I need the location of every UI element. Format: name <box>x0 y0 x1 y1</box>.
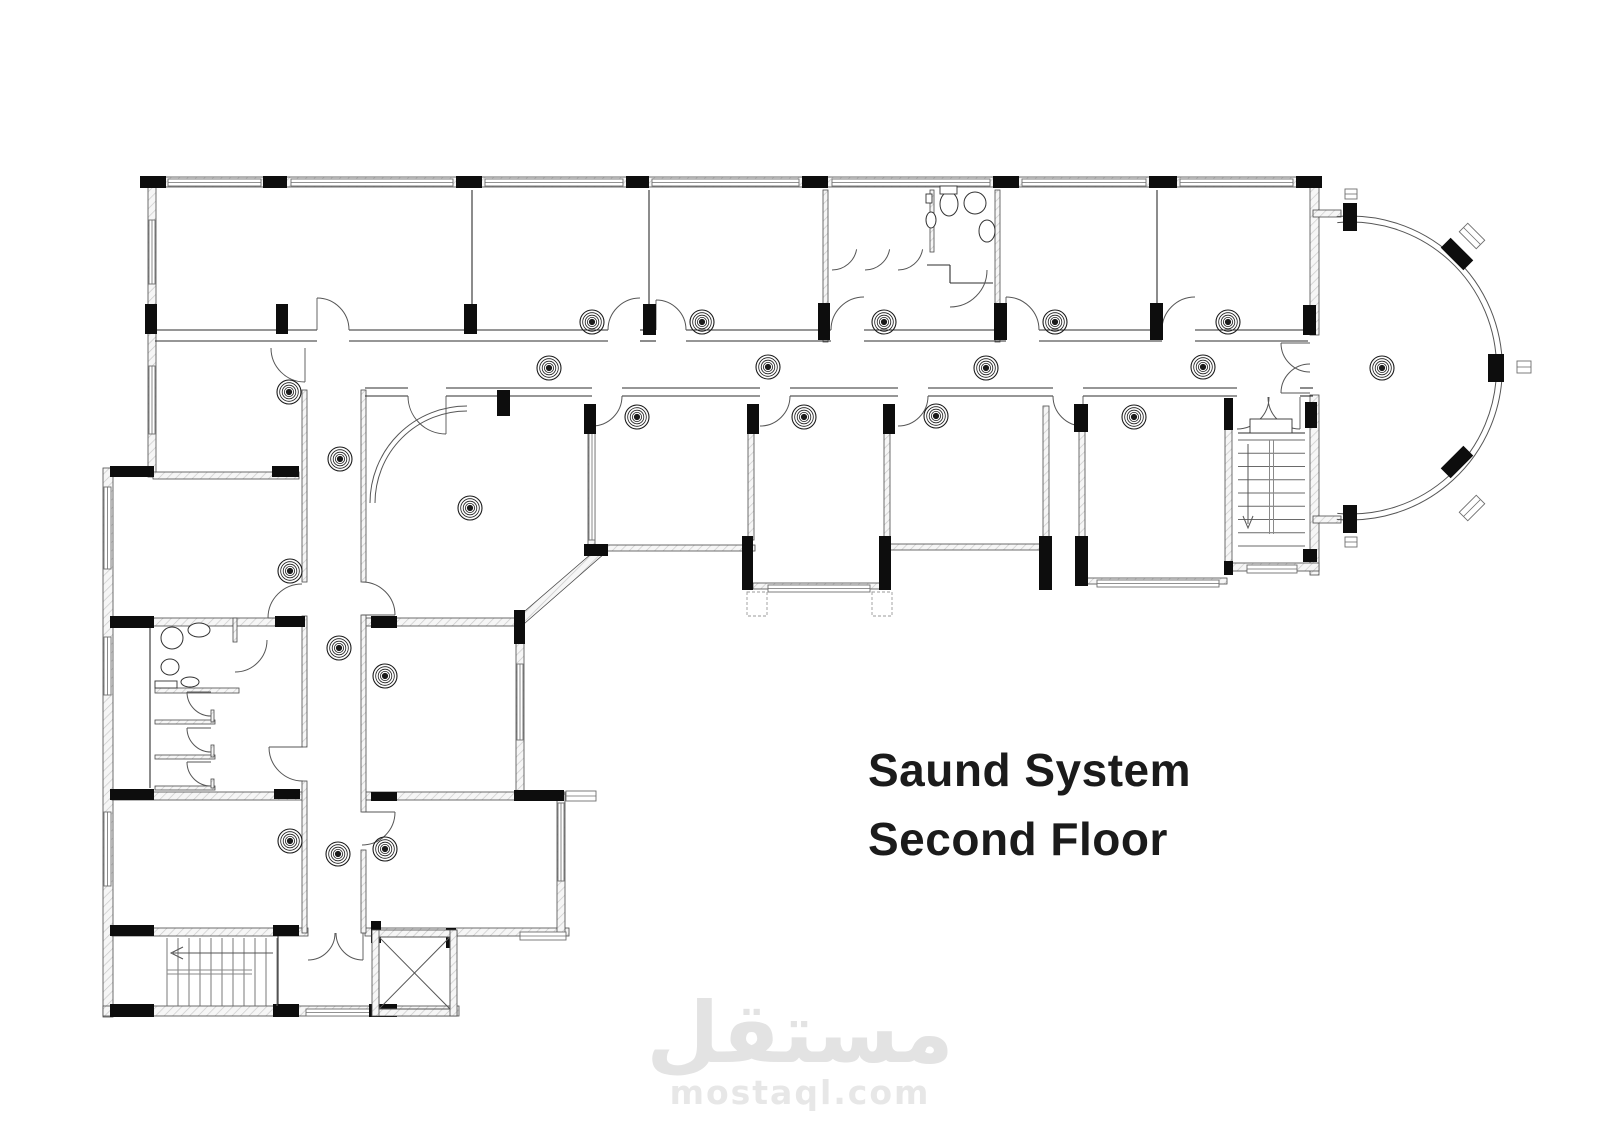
column <box>883 404 895 434</box>
wall <box>1043 406 1049 547</box>
speaker-icon <box>756 355 780 379</box>
column <box>1488 354 1504 382</box>
column <box>818 303 830 340</box>
column <box>1441 238 1474 271</box>
column <box>1296 176 1322 188</box>
column <box>110 925 154 936</box>
speaker-icon <box>1122 405 1146 429</box>
column <box>802 176 828 188</box>
wall <box>155 786 215 790</box>
window <box>1345 537 1357 547</box>
window <box>1247 565 1297 573</box>
speaker-icon <box>373 837 397 861</box>
window <box>832 179 990 186</box>
column <box>584 544 608 556</box>
window <box>306 1009 372 1016</box>
column <box>1149 176 1177 188</box>
fixture <box>940 192 958 216</box>
door-swing-arc <box>898 396 928 426</box>
column <box>584 404 596 434</box>
wall <box>361 615 366 812</box>
door-swing-arc <box>1281 364 1310 393</box>
door-swing-arc <box>832 249 857 270</box>
column <box>140 176 166 188</box>
fixture <box>940 186 957 194</box>
window <box>149 366 155 434</box>
fixture <box>979 220 995 242</box>
column <box>110 466 154 477</box>
wall-diagonal <box>518 548 605 623</box>
door-swing-arc <box>1162 297 1195 330</box>
column <box>273 925 299 936</box>
floorplan-page: Saund System Second Floor مستقل mostaql.… <box>0 0 1600 1131</box>
staircase <box>1238 440 1305 546</box>
wall <box>890 544 1049 550</box>
speaker-icon <box>278 559 302 583</box>
speaker-icon <box>277 380 301 404</box>
window <box>1345 189 1357 199</box>
column <box>456 176 482 188</box>
column <box>1303 305 1316 335</box>
curved-wall-arc <box>1337 216 1502 520</box>
floor-plan-canvas: Saund System Second Floor مستقل mostaql.… <box>0 0 1600 1131</box>
column <box>274 789 300 799</box>
column <box>110 616 154 628</box>
wall <box>302 616 307 747</box>
speaker-icon <box>924 404 948 428</box>
speaker-icon <box>1191 355 1215 379</box>
window <box>1517 361 1531 373</box>
column <box>1305 402 1317 428</box>
column <box>1039 536 1052 590</box>
wall <box>361 850 366 933</box>
window <box>104 487 111 569</box>
speaker-icon <box>327 636 351 660</box>
door-swing-arc <box>760 396 790 426</box>
curved-wall-arc <box>1337 222 1496 514</box>
window-below <box>872 592 892 616</box>
watermark-site-name: mostaql.com <box>670 1073 931 1112</box>
fixture <box>161 627 183 649</box>
wall <box>155 720 215 724</box>
door-swing-arc <box>831 297 864 330</box>
window <box>104 812 111 886</box>
column <box>626 176 649 188</box>
column <box>497 390 510 416</box>
window <box>485 179 623 186</box>
door-swing-arc <box>269 747 303 781</box>
door-swing-arc <box>1006 297 1039 330</box>
window <box>652 179 799 186</box>
staircase <box>167 938 277 1006</box>
wall <box>155 755 215 759</box>
window <box>566 791 596 801</box>
fixture <box>926 194 932 203</box>
window <box>768 585 870 592</box>
watermark-arabic-logo: مستقل <box>646 984 953 1082</box>
column <box>1303 549 1317 562</box>
window <box>1459 223 1484 248</box>
door-swing-arc <box>187 728 211 752</box>
wall <box>302 781 307 933</box>
column <box>275 616 305 627</box>
column <box>371 616 397 628</box>
wall <box>361 390 366 582</box>
fixture <box>926 212 936 228</box>
fixture <box>964 192 986 214</box>
speaker-icon <box>278 829 302 853</box>
speaker-icon <box>537 356 561 380</box>
wall <box>211 745 214 757</box>
door-swing-arc <box>271 348 305 382</box>
door-swing-arc <box>362 582 395 615</box>
plan-title-line2: Second Floor <box>868 813 1168 865</box>
wall <box>211 779 214 788</box>
door-swing-arc <box>898 249 923 270</box>
column <box>747 404 759 434</box>
column <box>1343 505 1357 533</box>
window <box>589 428 595 540</box>
window <box>1022 179 1146 186</box>
plan-title-line1: Saund System <box>868 744 1191 796</box>
column <box>263 176 287 188</box>
door-swing-arc <box>608 298 640 330</box>
column <box>879 536 891 590</box>
curved-wall-arc <box>370 406 467 503</box>
column <box>1074 404 1088 432</box>
column <box>994 303 1007 340</box>
fixture <box>155 681 177 688</box>
speaker-icon <box>974 356 998 380</box>
window <box>104 637 111 695</box>
door-swing-arc <box>268 584 302 618</box>
fixture <box>181 677 199 687</box>
window <box>1459 495 1484 520</box>
door-swing-arc <box>235 640 267 672</box>
column <box>1441 446 1474 479</box>
column <box>1150 303 1163 340</box>
window <box>520 932 566 940</box>
speaker-icon <box>326 842 350 866</box>
column <box>643 304 656 335</box>
column <box>371 792 397 801</box>
column <box>272 466 299 477</box>
window <box>168 179 261 186</box>
wall <box>233 618 237 642</box>
column <box>145 304 157 334</box>
column <box>993 176 1019 188</box>
door-swing-arc <box>592 396 622 426</box>
column <box>276 304 288 334</box>
fixture <box>188 623 210 637</box>
column <box>1224 398 1233 430</box>
elevator-shaft <box>372 930 457 1016</box>
wall <box>211 710 214 722</box>
wall <box>588 545 755 551</box>
door-swing-arc <box>308 933 335 960</box>
plan-geometry <box>103 176 1531 1017</box>
door-swing-arc <box>950 270 987 307</box>
column <box>742 536 753 590</box>
window <box>291 179 453 186</box>
window-below <box>747 592 767 616</box>
speaker-icon <box>458 496 482 520</box>
column <box>464 304 477 334</box>
fixture <box>1250 419 1292 433</box>
column <box>1343 203 1357 231</box>
window <box>517 664 523 740</box>
speaker-icon <box>792 405 816 429</box>
column <box>514 790 564 801</box>
door-swing-arc <box>317 298 349 330</box>
column <box>110 1004 154 1017</box>
fixture <box>161 659 179 675</box>
wall <box>302 390 307 582</box>
door-swing-arc <box>656 300 686 330</box>
window <box>1097 580 1219 587</box>
column <box>1075 536 1088 586</box>
door-swing-arc <box>362 812 395 845</box>
speaker-icon <box>328 447 352 471</box>
door-swing-arc <box>336 933 363 960</box>
speaker-icon <box>625 405 649 429</box>
speaker-icon <box>1370 356 1394 380</box>
column <box>110 789 154 800</box>
speaker-icon <box>373 664 397 688</box>
door-swing-arc <box>865 249 890 270</box>
door-swing-arc <box>187 762 211 786</box>
column <box>514 610 525 644</box>
wall <box>1313 210 1341 217</box>
window <box>149 220 155 284</box>
column <box>1224 561 1233 575</box>
window <box>1180 179 1293 186</box>
window <box>558 803 564 881</box>
door-swing-arc <box>187 692 211 716</box>
